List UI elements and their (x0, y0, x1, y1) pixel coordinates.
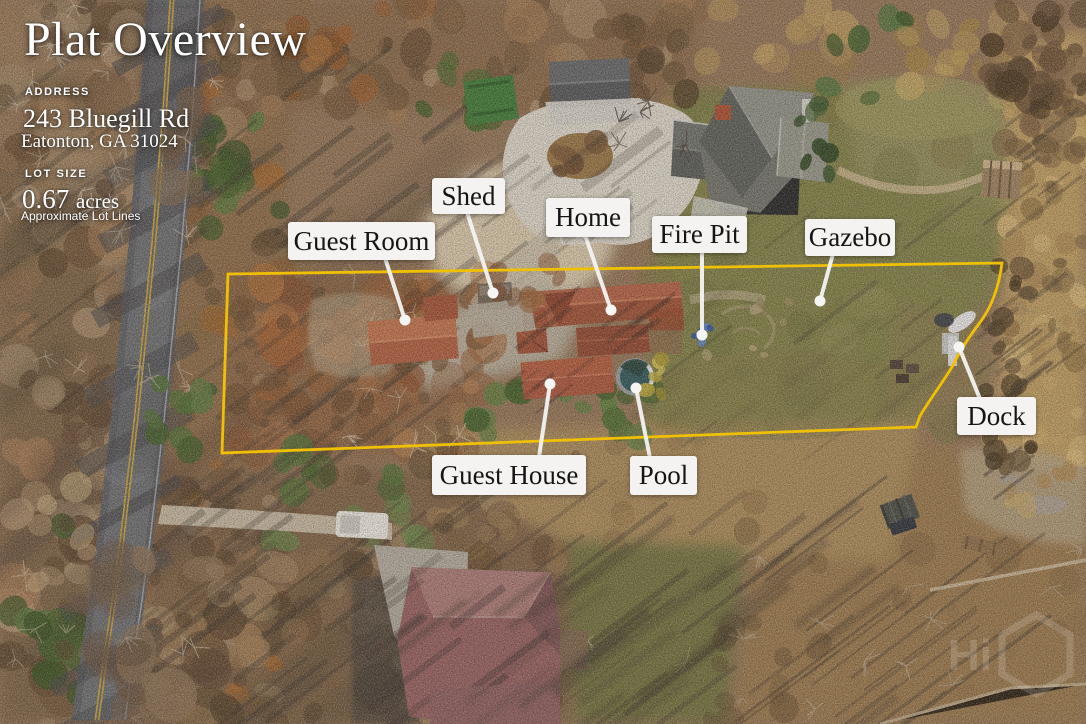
svg-text:Hi: Hi (948, 631, 992, 680)
